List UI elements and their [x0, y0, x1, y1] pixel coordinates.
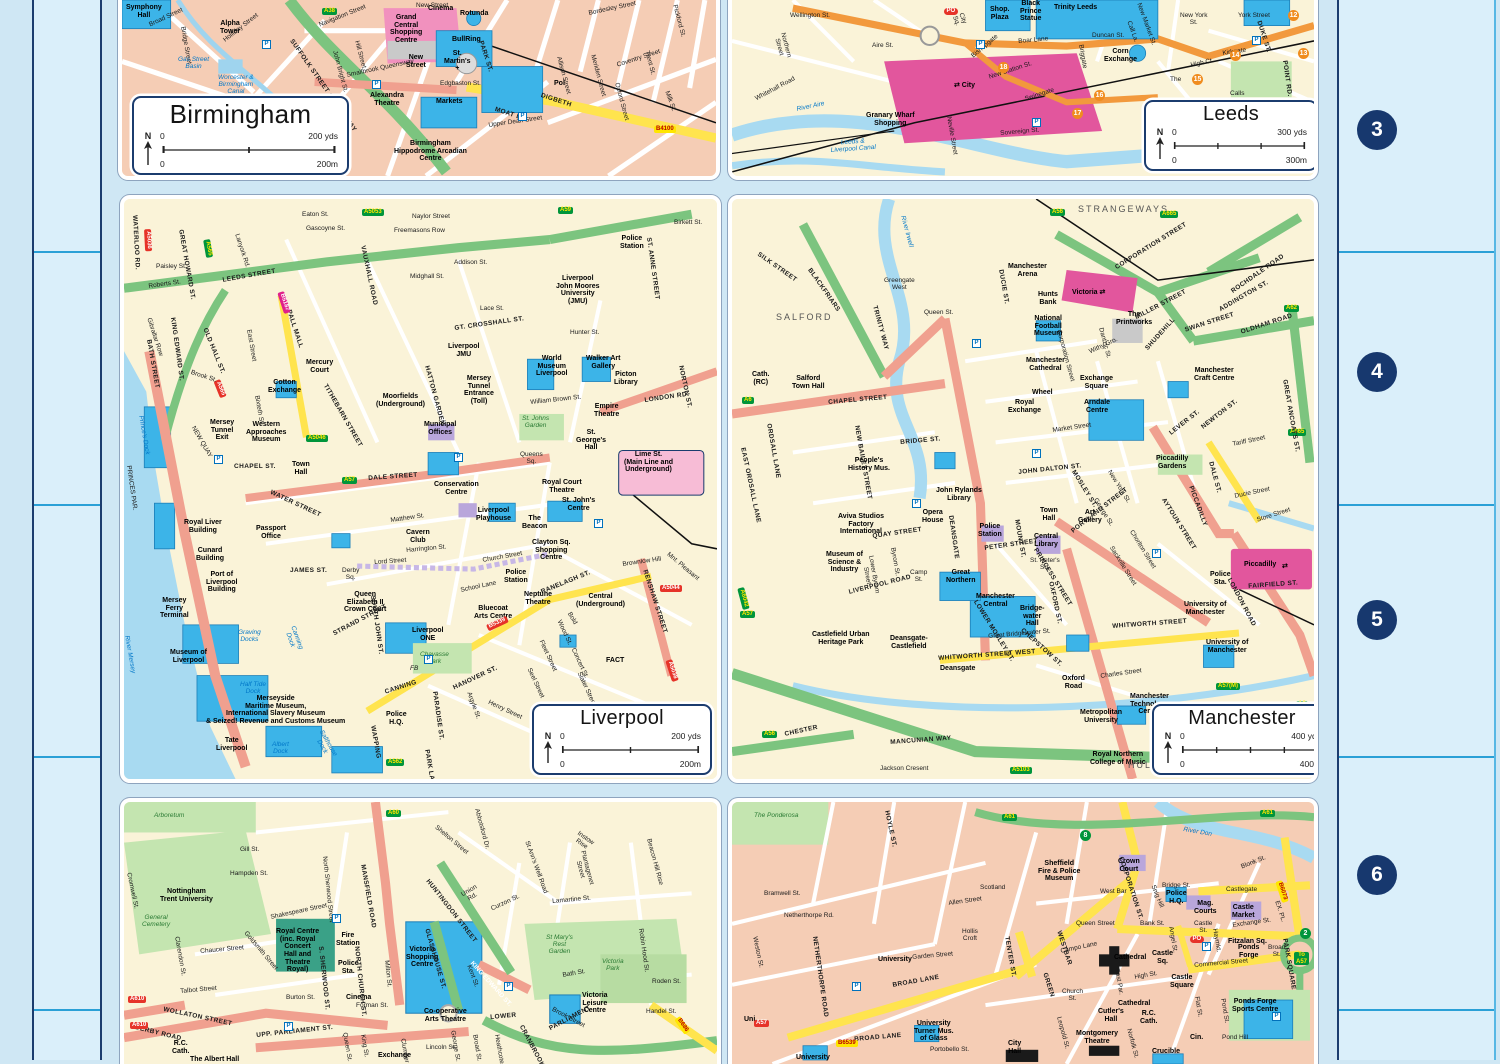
map-label: Pond St.: [1219, 998, 1230, 1024]
map-label: A5103: [1010, 767, 1032, 774]
map-label: University: [796, 1054, 830, 1062]
map-label: Hampden St.: [230, 870, 268, 877]
map-label: Beacon Hill Rise: [645, 838, 664, 886]
map-label: Haymkt.: [1211, 928, 1222, 953]
map-panel-leeds: Wellington St.Northern StreetWhitehall R…: [728, 0, 1318, 180]
map-label: A59: [558, 207, 573, 214]
map-label: People's History Mus.: [848, 457, 890, 472]
map-label: Market Street: [1052, 422, 1092, 435]
map-label: Piccadilly Gardens: [1156, 455, 1188, 470]
map-label: Piccadilly: [1244, 561, 1276, 569]
map-label: Queens Sq.: [520, 451, 543, 465]
grid-line: [34, 756, 100, 758]
map-label: OLDHAM ROAD: [1240, 312, 1293, 335]
map-label: Cavern Club: [406, 529, 430, 544]
map-label: Lime St. (Main Line and Underground): [624, 451, 673, 474]
map-label: AYTOUN STREET: [1160, 497, 1198, 551]
city-title: Leeds: [1155, 103, 1307, 126]
map-label: PALL MALL: [285, 309, 304, 349]
map-label: Deansgate- Castlefield: [890, 635, 928, 650]
map-label: MANCUNIAN WAY: [890, 735, 952, 746]
scale-bar: 0300 yds 0300m: [1172, 127, 1307, 165]
map-label: Pickford St.: [671, 4, 686, 38]
row-number-4: 4: [1357, 352, 1397, 392]
map-label: Grand Central Shopping Centre: [390, 14, 422, 45]
map-label: University of Manchester: [1184, 601, 1226, 616]
map-label: Camp St.: [910, 569, 927, 583]
map-label: 12: [1288, 10, 1299, 21]
map-label: A57: [740, 611, 755, 618]
map-label: NORTON ST.: [677, 365, 693, 409]
map-label: Lanyork Rd.: [233, 233, 251, 269]
map-label: P: [262, 40, 271, 49]
map-label: West Bar: [1100, 888, 1127, 895]
map-label: P: [372, 80, 381, 89]
map-label: RENSHAW STREET: [641, 569, 668, 634]
map-label: The: [1170, 76, 1181, 83]
map-label: Aviva Studios Factory International: [838, 513, 884, 536]
map-label: P: [1032, 118, 1041, 127]
map-label: S. SHERWOOD ST.: [317, 946, 331, 1010]
map-label: Corn Exchange: [1104, 48, 1137, 63]
map-label: School Lane: [460, 579, 497, 593]
map-label: A6: [742, 397, 754, 404]
map-label: A5044: [660, 585, 682, 592]
map-label: Bold: [566, 611, 579, 626]
city-title: Liverpool: [543, 707, 701, 730]
map-label: P: [518, 112, 527, 121]
map-label: SILK STREET: [756, 251, 798, 284]
city-title: Manchester: [1163, 707, 1318, 730]
map-label: Museum of Liverpool: [170, 649, 207, 664]
map-label: Wellington St.: [790, 12, 830, 19]
map-label: Weston St.: [751, 936, 765, 968]
map-label: Rotunda: [460, 10, 488, 18]
map-label: High Ct.: [1190, 57, 1214, 69]
map-label: Garden Street: [912, 950, 953, 961]
map-label: Police Station: [620, 235, 644, 250]
map-label: High St.: [1134, 970, 1158, 981]
map-label: Hollis Croft: [962, 928, 978, 942]
map-label: Derby Sq.: [342, 567, 359, 581]
map-label: Castlefield Urban Heritage Park: [812, 631, 870, 646]
map-label: P: [972, 339, 981, 348]
map-label: Calls: [1230, 90, 1244, 97]
map-label: CORPORATION STREET: [1114, 221, 1188, 271]
map-label: WHITWORTH STREET: [1112, 618, 1187, 630]
map-label: St. Johns Garden: [522, 415, 549, 429]
map-label: Corporation Street: [1055, 329, 1076, 382]
map-label: Church Street: [482, 550, 523, 564]
map-label: Mercury Court: [306, 359, 333, 374]
map-label: EAST ORDSALL LANE: [739, 447, 762, 524]
map-label: Castle Sq.: [1152, 950, 1173, 965]
map-label: General Cemetery: [142, 914, 170, 928]
map-label: World Museum Liverpool: [536, 355, 568, 378]
map-label: Oxford Street: [613, 82, 630, 121]
map-label: Alexandra Theatre: [370, 92, 404, 107]
map-label: The Beacon: [522, 515, 547, 530]
map-label: A57(M): [1216, 683, 1240, 690]
map-label: Plantagenet Street: [572, 850, 595, 887]
map-label: Paisley St.: [156, 263, 187, 270]
map-label: Gill St.: [240, 846, 259, 853]
map-label: Talbot Street: [180, 985, 217, 995]
map-label: Roden St.: [652, 978, 681, 985]
map-label: CHAPEL ST.: [234, 463, 276, 470]
grid-line: [34, 251, 100, 253]
map-label: Hunts Bank: [1038, 291, 1058, 306]
map-label: BLACKFRIARS: [806, 267, 841, 313]
map-label: Freemasons Row: [394, 227, 445, 234]
map-panel-sheffield: The PonderosaA61A6182HOYLE ST.CORPORATIO…: [728, 798, 1318, 1064]
map-label: P: [594, 519, 603, 528]
map-label: Arndale Centre: [1084, 399, 1110, 414]
map-label: A60: [386, 810, 401, 817]
map-label: John Rylands Library: [936, 487, 982, 502]
map-label: Fleet Street: [538, 639, 559, 672]
manchester-title-box: Manchester N 0400 yds 0400m: [1152, 704, 1318, 775]
map-label: Shop. Plaza: [990, 6, 1009, 21]
map-label: LOWER: [490, 1012, 517, 1021]
map-label: A5036: [144, 229, 152, 251]
map-label: HANOVER ST.: [452, 665, 499, 692]
map-label: Bank St.: [1140, 920, 1165, 927]
map-label: Black Prince Statue: [1020, 0, 1041, 23]
map-label: Handel St.: [646, 1008, 676, 1015]
map-label: Town Hall: [292, 461, 310, 476]
map-label: St. George's Hall: [576, 429, 606, 452]
map-label: Addison St.: [454, 259, 487, 266]
map-label: Exchange Square: [1080, 375, 1113, 390]
map-label: River Irwell: [899, 215, 914, 248]
map-label: St Ann's Well Road: [523, 840, 549, 894]
row-number-6: 6: [1357, 855, 1397, 895]
map-label: Queen St.: [341, 1032, 353, 1062]
map-label: Co-operative Arts Theatre: [424, 1008, 467, 1023]
map-label: Flat St.: [1193, 996, 1204, 1018]
map-label: A61: [1260, 810, 1275, 817]
map-label: Lamartine St.: [552, 895, 591, 905]
map-label: Liverpool Playhouse: [476, 507, 511, 522]
map-label: WOLLATON STREET: [163, 1006, 233, 1028]
north-arrow: N: [143, 131, 153, 165]
map-label: Leeds & Liverpool Canal: [830, 137, 876, 154]
map-label: P: [424, 655, 433, 664]
map-label: University Turner Mus. of Glass: [914, 1020, 954, 1043]
map-label: 8: [1080, 830, 1091, 841]
map-label: Bordesley Street: [588, 0, 636, 17]
map-label: Opera House: [922, 509, 943, 524]
map-label: Cotton Exchange: [268, 379, 301, 394]
map-label: Edgbaston St.: [440, 80, 481, 87]
map-label: Instow Rise: [572, 830, 596, 852]
map-label: A38: [322, 8, 337, 15]
map-label: P: [1252, 36, 1261, 45]
map-label: PO: [944, 8, 958, 15]
map-panel-birmingham: Symphony HallBroad StreetAlpha TowerBrid…: [118, 0, 720, 180]
map-label: Eaton St.: [302, 211, 329, 218]
map-label: Mnt. Pleasant: [665, 551, 700, 582]
map-label: Tate Liverpool: [216, 737, 248, 752]
map-label: P: [284, 1022, 293, 1031]
atlas-page: { "margin": { "numbers": ["3", "4", "5",…: [0, 0, 1500, 1060]
map-label: B5187: [278, 291, 291, 314]
map-label: P: [332, 914, 341, 923]
map-label: Worcester & Birmingham Canal: [218, 74, 254, 95]
map-label: Milk St.: [663, 90, 677, 112]
map-label: Oxford Road: [1062, 675, 1085, 690]
grid-line: [34, 504, 100, 506]
map-label: Montgomery Theatre: [1076, 1030, 1118, 1045]
map-label: St. John's Centre: [562, 497, 595, 512]
map-label: Henry Street: [487, 699, 523, 721]
map-label: CHAPEL STREET: [828, 394, 888, 406]
map-label: Scotland: [980, 884, 1005, 891]
leeds-title-box: Leeds N 0300 yds 0300m: [1144, 100, 1318, 171]
map-label: Naylor Street: [412, 213, 450, 220]
map-label: Birkett St.: [674, 219, 702, 226]
map-label: East Street: [245, 329, 258, 362]
map-label: Town Hall: [1040, 507, 1058, 522]
map-label: City Hall: [1008, 1040, 1021, 1055]
map-label: 17: [1072, 108, 1083, 119]
map-label: Blonk St.: [1240, 854, 1267, 870]
map-label: SWAN STREET: [1184, 311, 1235, 334]
map-panel-liverpool: WATERLOO RD.A5036GREAT HOWARD ST.A565LEE…: [120, 195, 721, 783]
map-label: Castle Market: [1232, 904, 1255, 919]
map-label: Wheel: [1032, 389, 1053, 397]
map-label: Walker Art Gallery: [586, 355, 621, 370]
map-label: DIGBETH: [540, 92, 573, 109]
map-label: Port of Liverpool Building: [206, 571, 238, 594]
map-label: Cutler's Hall: [1098, 1008, 1124, 1023]
map-label: CHESTER: [784, 724, 819, 738]
map-label: Cathedral: [1114, 954, 1146, 962]
map-label: Mersey Tunnel Exit: [210, 419, 234, 442]
map-label: A57: [342, 477, 357, 484]
map-label: New Station St.: [988, 60, 1033, 81]
map-label: WHITWORTH STREET WEST: [938, 648, 1036, 662]
map-label: P: [214, 455, 223, 464]
map-label: Queen St.: [924, 309, 953, 316]
map-label: Cinema: [346, 994, 371, 1002]
map-label: Portobello St.: [930, 1046, 969, 1053]
map-label: Union Rd.: [460, 884, 482, 905]
map-label: Chaucer Street: [200, 944, 244, 955]
map-label: Police H.Q.: [1166, 890, 1187, 905]
map-label: Victoria Park: [602, 958, 624, 972]
map-panel-manchester: STRANGEWAYSA56A665A62A665A6A6042A57A5103…: [728, 195, 1318, 783]
city-title: Birmingham: [143, 99, 338, 130]
map-label: P: [912, 499, 921, 508]
map-label: Exchange: [378, 1052, 411, 1060]
map-label: A562: [386, 759, 404, 766]
map-label: To A57: [1294, 952, 1309, 965]
map-label: EX. PL.: [1273, 900, 1287, 923]
map-label: Bridge St.: [1162, 882, 1191, 889]
map-label: Markets: [436, 98, 462, 106]
map-label: Sovereign St.: [1000, 127, 1040, 138]
map-label: Prince's Dock: [137, 415, 151, 455]
map-label: Argyle St.: [465, 691, 481, 720]
map-label: Canning Dock: [283, 625, 305, 653]
map-label: Forman St.: [356, 1002, 388, 1009]
map-label: A665: [1160, 211, 1178, 218]
map-label: East Par.: [1113, 968, 1125, 995]
map-label: River Aire: [796, 100, 825, 113]
map-label: Bath St.: [562, 968, 586, 979]
map-label: Salthouse Dock: [312, 729, 339, 761]
map-label: King St.: [359, 1034, 370, 1058]
map-label: Boar Lane: [1018, 35, 1049, 45]
map-label: 13: [1298, 48, 1309, 59]
map-label: Merseyside Maritime Museum, Internationa…: [206, 695, 345, 726]
map-label: Nottingham Trent University: [160, 888, 213, 903]
map-label: ST. ANNE STREET: [645, 237, 661, 300]
scale-bar: 0200 yds 0200m: [160, 131, 338, 169]
map-label: Liverpool JMU: [448, 343, 480, 358]
map-label: HOYLE ST.: [883, 810, 898, 848]
map-label: TENTER ST.: [1003, 936, 1017, 978]
map-label: WATERLOO RD.: [131, 215, 141, 270]
map-label: Trinity Leeds: [1054, 4, 1097, 12]
map-label: A610: [128, 996, 146, 1003]
map-label: River Don: [1183, 826, 1213, 838]
birmingham-title-box: Birmingham N 0200 yds 0200m: [132, 96, 349, 175]
map-label: A565: [204, 239, 214, 258]
map-label: Mag. Courts: [1194, 900, 1217, 915]
map-label: DALE STREET: [368, 472, 418, 483]
map-label: P: [1032, 449, 1041, 458]
map-label: Victoria ⇄: [1072, 289, 1105, 297]
map-label: Hill Street: [353, 40, 367, 69]
map-label: Charles Street: [1100, 667, 1142, 680]
map-label: A6042: [738, 587, 750, 610]
map-label: Royal Court Theatre: [542, 479, 582, 494]
map-label: University: [878, 956, 912, 964]
map-label: B6539: [836, 1040, 858, 1047]
map-label: New Street: [416, 2, 448, 9]
map-label: Mersey Tunnel Entrance (Toll): [464, 375, 494, 406]
map-label: Moorfields (Underground): [376, 393, 425, 408]
map-label: Albert Dock: [272, 741, 289, 755]
map-label: Salford Town Hall: [792, 375, 825, 390]
map-label: Metropolitan University: [1080, 709, 1122, 724]
map-label: Clumber St.: [399, 1038, 412, 1064]
map-label: Store Street: [1256, 506, 1291, 524]
map-label: Art Gallery: [1078, 509, 1102, 524]
map-label: PARK LANE: [423, 749, 437, 783]
map-label: LEVER ST.: [1168, 409, 1201, 437]
grid-line: [1339, 251, 1494, 253]
map-label: GT. CROSSHALL ST.: [454, 315, 525, 332]
map-label: Abbotsford Dr.: [473, 808, 491, 850]
map-label: Lace St.: [480, 305, 504, 312]
map-label: Western Approaches Museum: [246, 421, 286, 444]
map-label: A56: [762, 731, 777, 738]
map-label: Half Tide Dock: [240, 681, 266, 695]
map-label: Bramwell St.: [764, 890, 800, 897]
map-label: St. Martin's +: [444, 50, 471, 73]
north-arrow: N: [1163, 731, 1173, 763]
map-label: Allison Street: [555, 56, 572, 95]
map-label: Commercial Street: [1194, 957, 1248, 969]
map-label: Shelton Street: [433, 824, 469, 856]
map-label: P: [504, 982, 513, 991]
map-label: UPP. PARLIAMENT ST.: [256, 1024, 333, 1039]
map-label: Granary Wharf Shopping: [866, 112, 915, 127]
map-label: Brownlow Hill: [622, 556, 662, 569]
map-label: Queen Street: [1076, 920, 1115, 927]
map-label: CANNING: [384, 679, 418, 696]
map-label: Arboretum: [154, 812, 184, 819]
map-label: Ducie Street: [1234, 486, 1270, 500]
map-label: Lord Street: [374, 557, 407, 566]
map-label: SALFORD: [776, 313, 833, 323]
map-label: Manchester Craft Centre: [1194, 367, 1234, 382]
map-label: Robin Hood St.: [637, 928, 650, 973]
map-label: 15: [1192, 74, 1203, 85]
map-label: Crucible: [1152, 1048, 1180, 1056]
map-label: P: [976, 40, 985, 49]
map-label: Police Station: [504, 569, 528, 584]
map-label: P: [852, 982, 861, 991]
map-label: Great Northern: [946, 569, 976, 584]
map-label: BROAD LANE: [892, 974, 940, 989]
map-label: Seel Street: [526, 667, 546, 699]
map-label: Allen Street: [948, 895, 982, 907]
map-label: GREEN: [1041, 972, 1056, 998]
map-label: Castlegate: [1226, 886, 1257, 893]
map-label: Northern Street: [772, 32, 792, 60]
map-label: PETER STREET: [984, 537, 1038, 552]
grid-line: [1339, 756, 1494, 758]
map-label: Central (Underground): [576, 593, 625, 608]
map-label: Police Station: [978, 523, 1002, 538]
map-label: ⇄: [1282, 563, 1288, 571]
map-label: Curzon St.: [490, 893, 521, 912]
map-label: TRINITY WAY: [871, 305, 890, 351]
map-label: Norfolk St.: [1125, 1028, 1140, 1059]
map-label: LEEDS STREET: [222, 268, 276, 284]
map-label: ⇄ City: [954, 82, 975, 90]
map-label: B4100: [654, 126, 676, 133]
map-label: FAIRFIELD ST.: [1248, 580, 1298, 591]
map-label: Manchester Arena: [1008, 263, 1047, 278]
map-label: Tariff Street: [1232, 434, 1266, 448]
map-label: R.C. Cath.: [172, 1040, 190, 1055]
map-label: DEANSGATE: [947, 515, 960, 560]
map-label: JAMES ST.: [290, 567, 327, 574]
map-label: George St.: [449, 1030, 461, 1062]
map-label: York Street: [1238, 12, 1270, 19]
map-label: Passport Office: [256, 525, 286, 540]
map-label: Deansgate: [940, 665, 975, 673]
map-label: NEWTON ST.: [1200, 398, 1239, 431]
map-label: Harrington St.: [406, 544, 447, 555]
map-label: P: [1202, 942, 1211, 951]
map-label: Cunard Building: [196, 547, 224, 562]
map-label: BRIDGE ST.: [900, 435, 941, 446]
map-label: Museum of Science & Industry: [826, 551, 863, 574]
map-label: FB: [410, 665, 418, 672]
scale-bar: 0200 yds 0200m: [560, 731, 701, 769]
map-label: A61: [1002, 814, 1017, 821]
scale-bar: 0400 yds 0400m: [1180, 731, 1318, 769]
map-label: Cromwell St.: [125, 872, 140, 910]
map-label: Cathedral: [1118, 1000, 1150, 1008]
